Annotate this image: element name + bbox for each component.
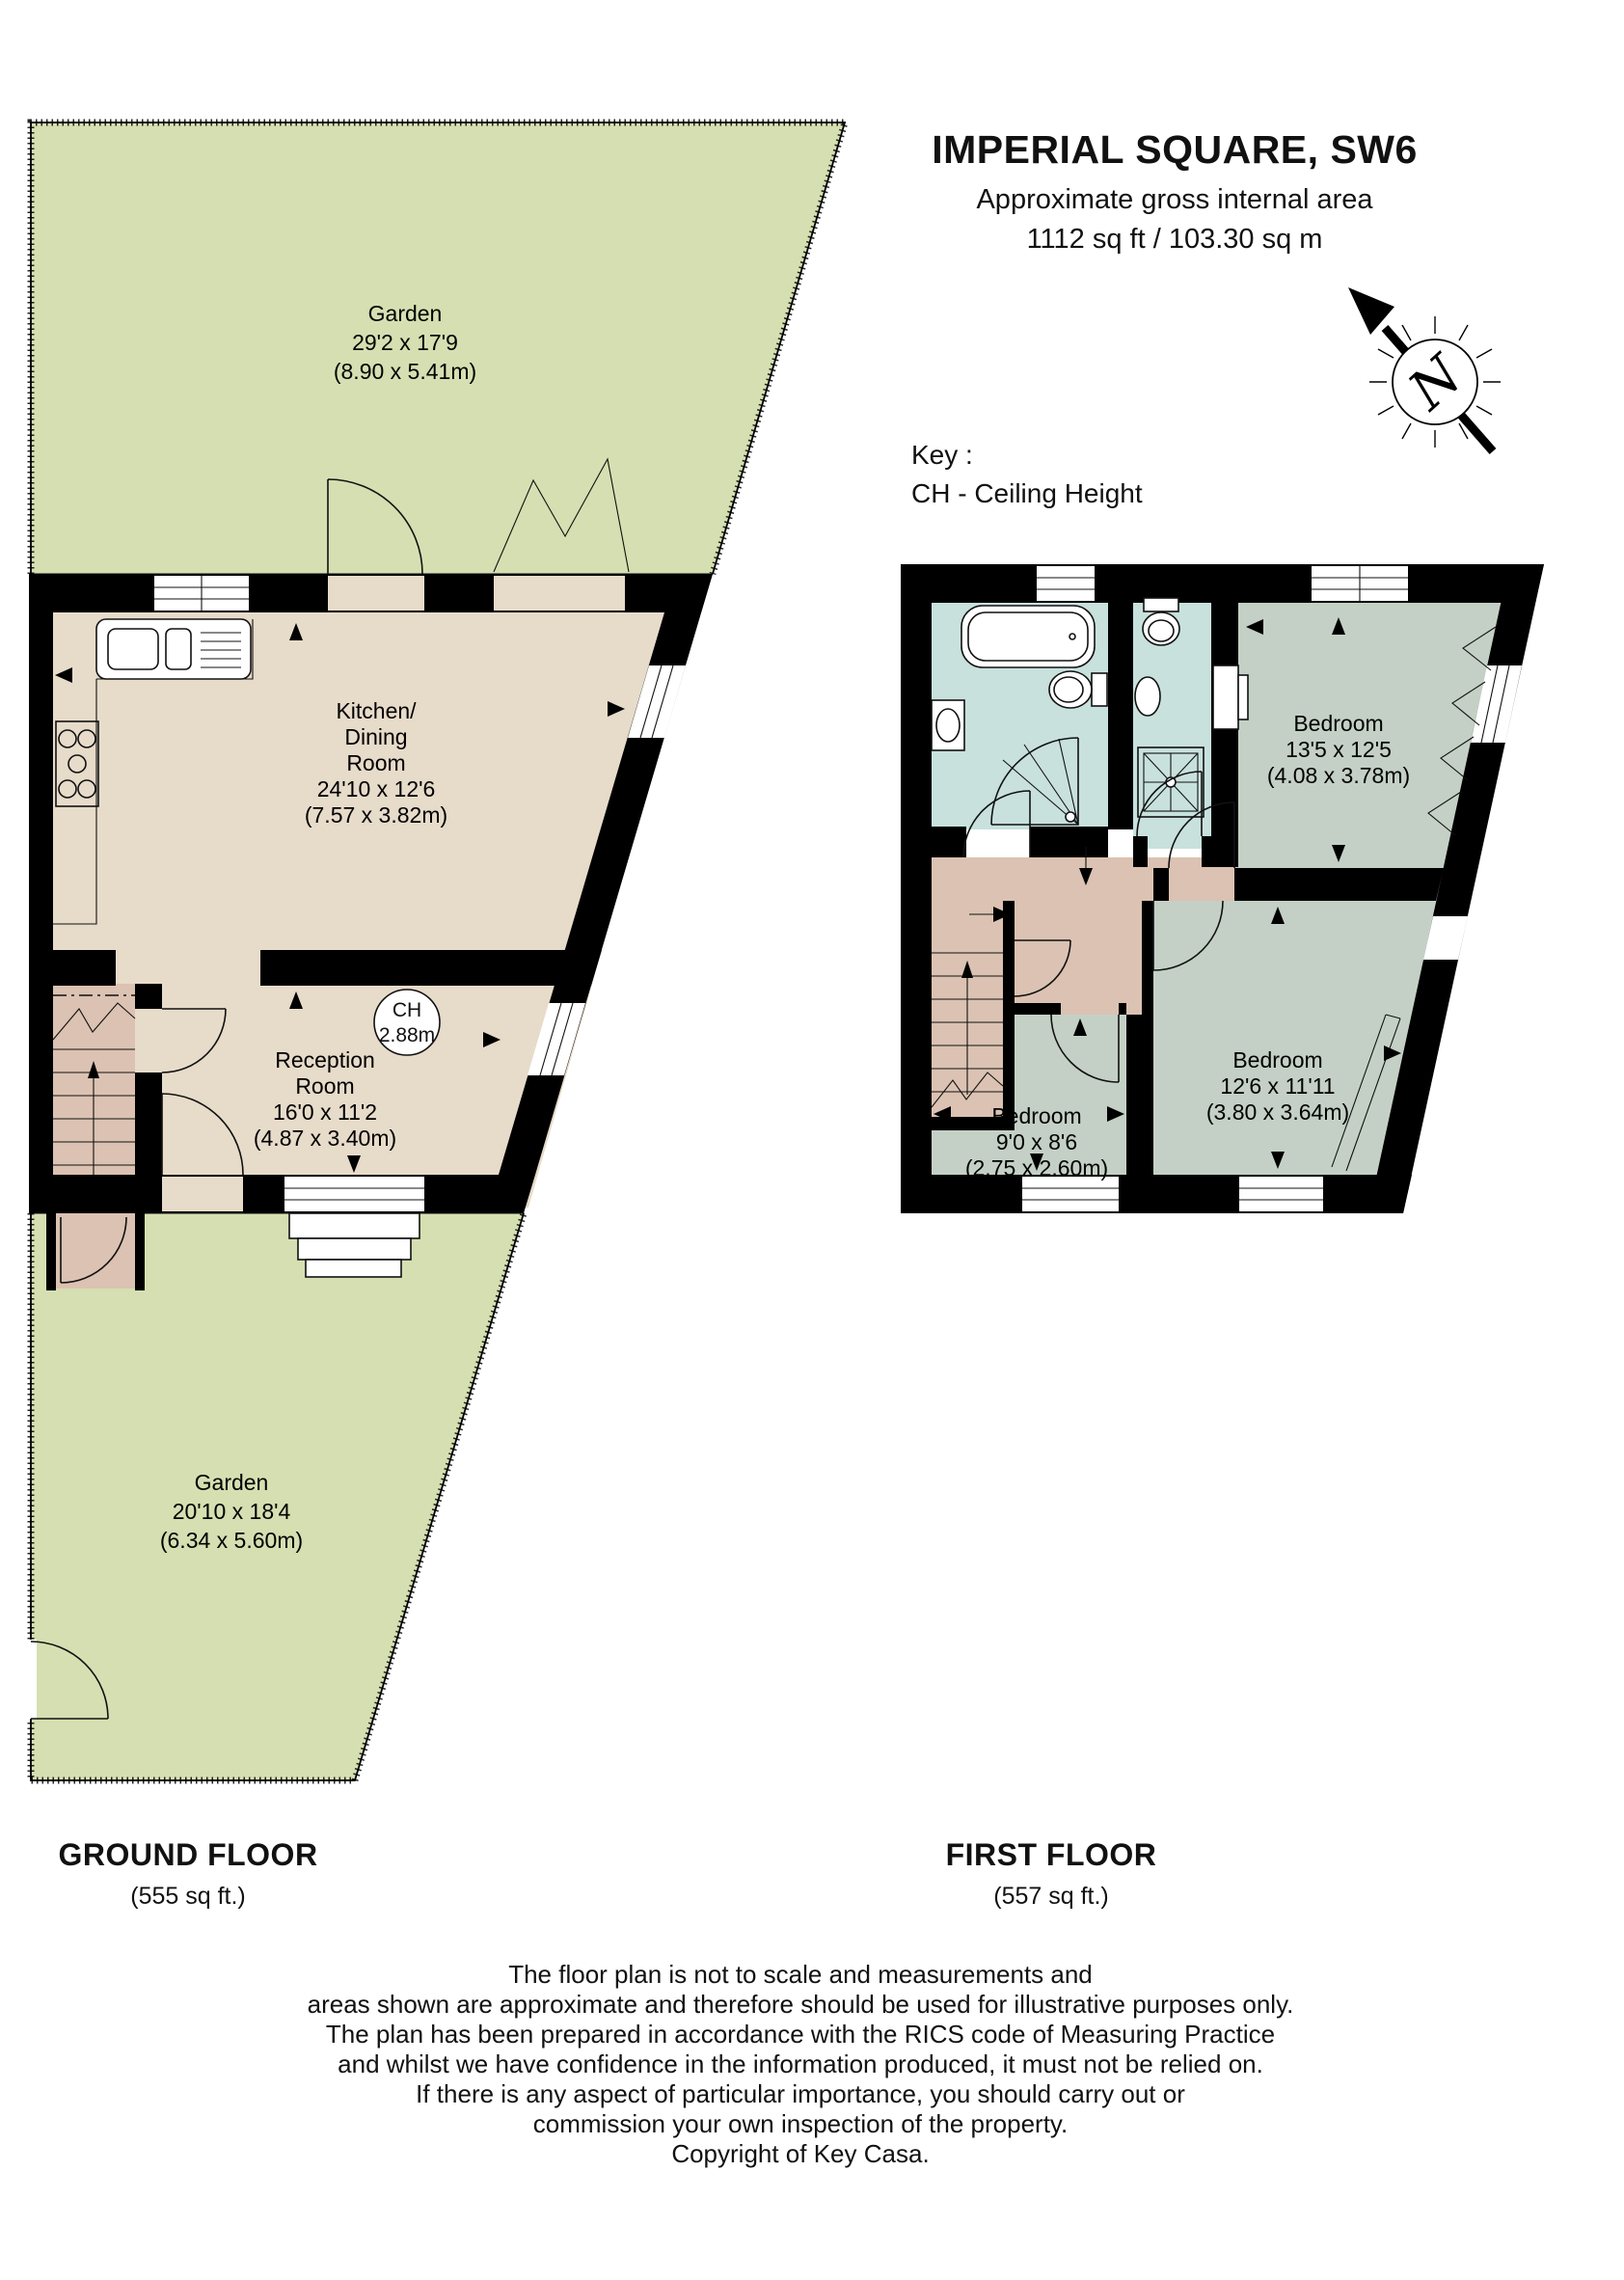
garden-door-opening	[328, 576, 424, 611]
bifold-opening	[494, 576, 625, 611]
bedroom2-bedroom3-wall	[1126, 1015, 1153, 1175]
key-title: Key :	[911, 436, 1143, 475]
toilet-cistern	[1092, 673, 1107, 706]
total-area: 1112 sq ft / 103.30 sq m	[932, 224, 1418, 256]
entrance-vestibule	[56, 1213, 135, 1289]
key-block: Key : CH - Ceiling Height	[911, 436, 1143, 513]
hall-reception-wall	[135, 1072, 162, 1175]
reception-label: Reception Room 16'0 x 11'2 (4.87 x 3.40m…	[254, 1047, 396, 1152]
toilet2-cistern	[1144, 598, 1178, 611]
bedroom1-south-wall-b	[1234, 868, 1444, 901]
page-title: IMPERIAL SQUARE, SW6	[932, 127, 1418, 173]
garden-steps	[289, 1213, 420, 1238]
floorplan-page: N IMPERIAL SQUARE, SW6 Approximate gross…	[0, 0, 1624, 2280]
ceiling-height-label: CH 2.88m	[379, 998, 435, 1048]
kitchen-divider-wall-left	[53, 950, 116, 986]
kitchen-divider-wall-right	[260, 950, 602, 986]
bedroom3-top-wall-b	[1119, 1003, 1126, 1015]
key-ceiling-height: CH - Ceiling Height	[911, 475, 1143, 513]
ground-west-wall	[29, 574, 53, 1213]
reception-window	[284, 1177, 424, 1211]
basin2	[1135, 677, 1160, 716]
bedroom1-label: Bedroom 13'5 x 12'5 (4.08 x 3.78m)	[1267, 711, 1410, 789]
vestibule-wall-left	[46, 1213, 56, 1290]
bedroom3-label: Bedroom 9'0 x 8'6 (2.75 x 2.60m)	[965, 1103, 1108, 1181]
bedroom2-label: Bedroom 12'6 x 11'11 (3.80 x 3.64m)	[1206, 1047, 1349, 1126]
first-floor-label: FIRST FLOOR (557 sq ft.)	[940, 1837, 1162, 1911]
landing-closet	[1015, 901, 1142, 1015]
garden-gate-opening	[25, 1640, 37, 1719]
bedroom3-top-wall-a	[1015, 1003, 1061, 1015]
kitchen-dining-label: Kitchen/ Dining Room 24'10 x 12'6 (7.57 …	[305, 698, 447, 828]
hall-wall-stub	[135, 984, 162, 1009]
ground-floor-label: GROUND FLOOR (555 sq ft.)	[53, 1837, 323, 1911]
bathroom-south-wall-a	[932, 827, 966, 857]
shower-south-wall-b	[1202, 836, 1238, 867]
bedroom1-south-wall-a	[1153, 868, 1169, 901]
title-block: IMPERIAL SQUARE, SW6 Approximate gross i…	[932, 127, 1418, 256]
closet-side-wall	[1142, 901, 1153, 1015]
north-compass-icon: N	[1348, 287, 1501, 451]
bathroom-divider-wall	[1108, 596, 1133, 829]
wall-cupboard	[1213, 665, 1238, 729]
floorplan-drawing: N	[0, 0, 1624, 2280]
reception-door-opening	[162, 1177, 243, 1211]
stairs-side-wall	[1003, 901, 1015, 1117]
first-west-wall	[901, 564, 932, 1213]
garden-top-label: Garden 29'2 x 17'9 (8.90 x 5.41m)	[334, 299, 476, 386]
disclaimer-text: The floor plan is not to scale and measu…	[154, 1960, 1447, 2169]
shower-drain	[1066, 812, 1075, 822]
vestibule-wall-right	[135, 1213, 145, 1290]
shower-south-wall-a	[1133, 836, 1148, 867]
page-subtitle: Approximate gross internal area	[932, 184, 1418, 216]
bathroom-south-wall-b	[1030, 827, 1108, 857]
ground-south-wall	[29, 1175, 535, 1213]
garden-bottom-label: Garden 20'10 x 18'4 (6.34 x 5.60m)	[160, 1468, 303, 1555]
